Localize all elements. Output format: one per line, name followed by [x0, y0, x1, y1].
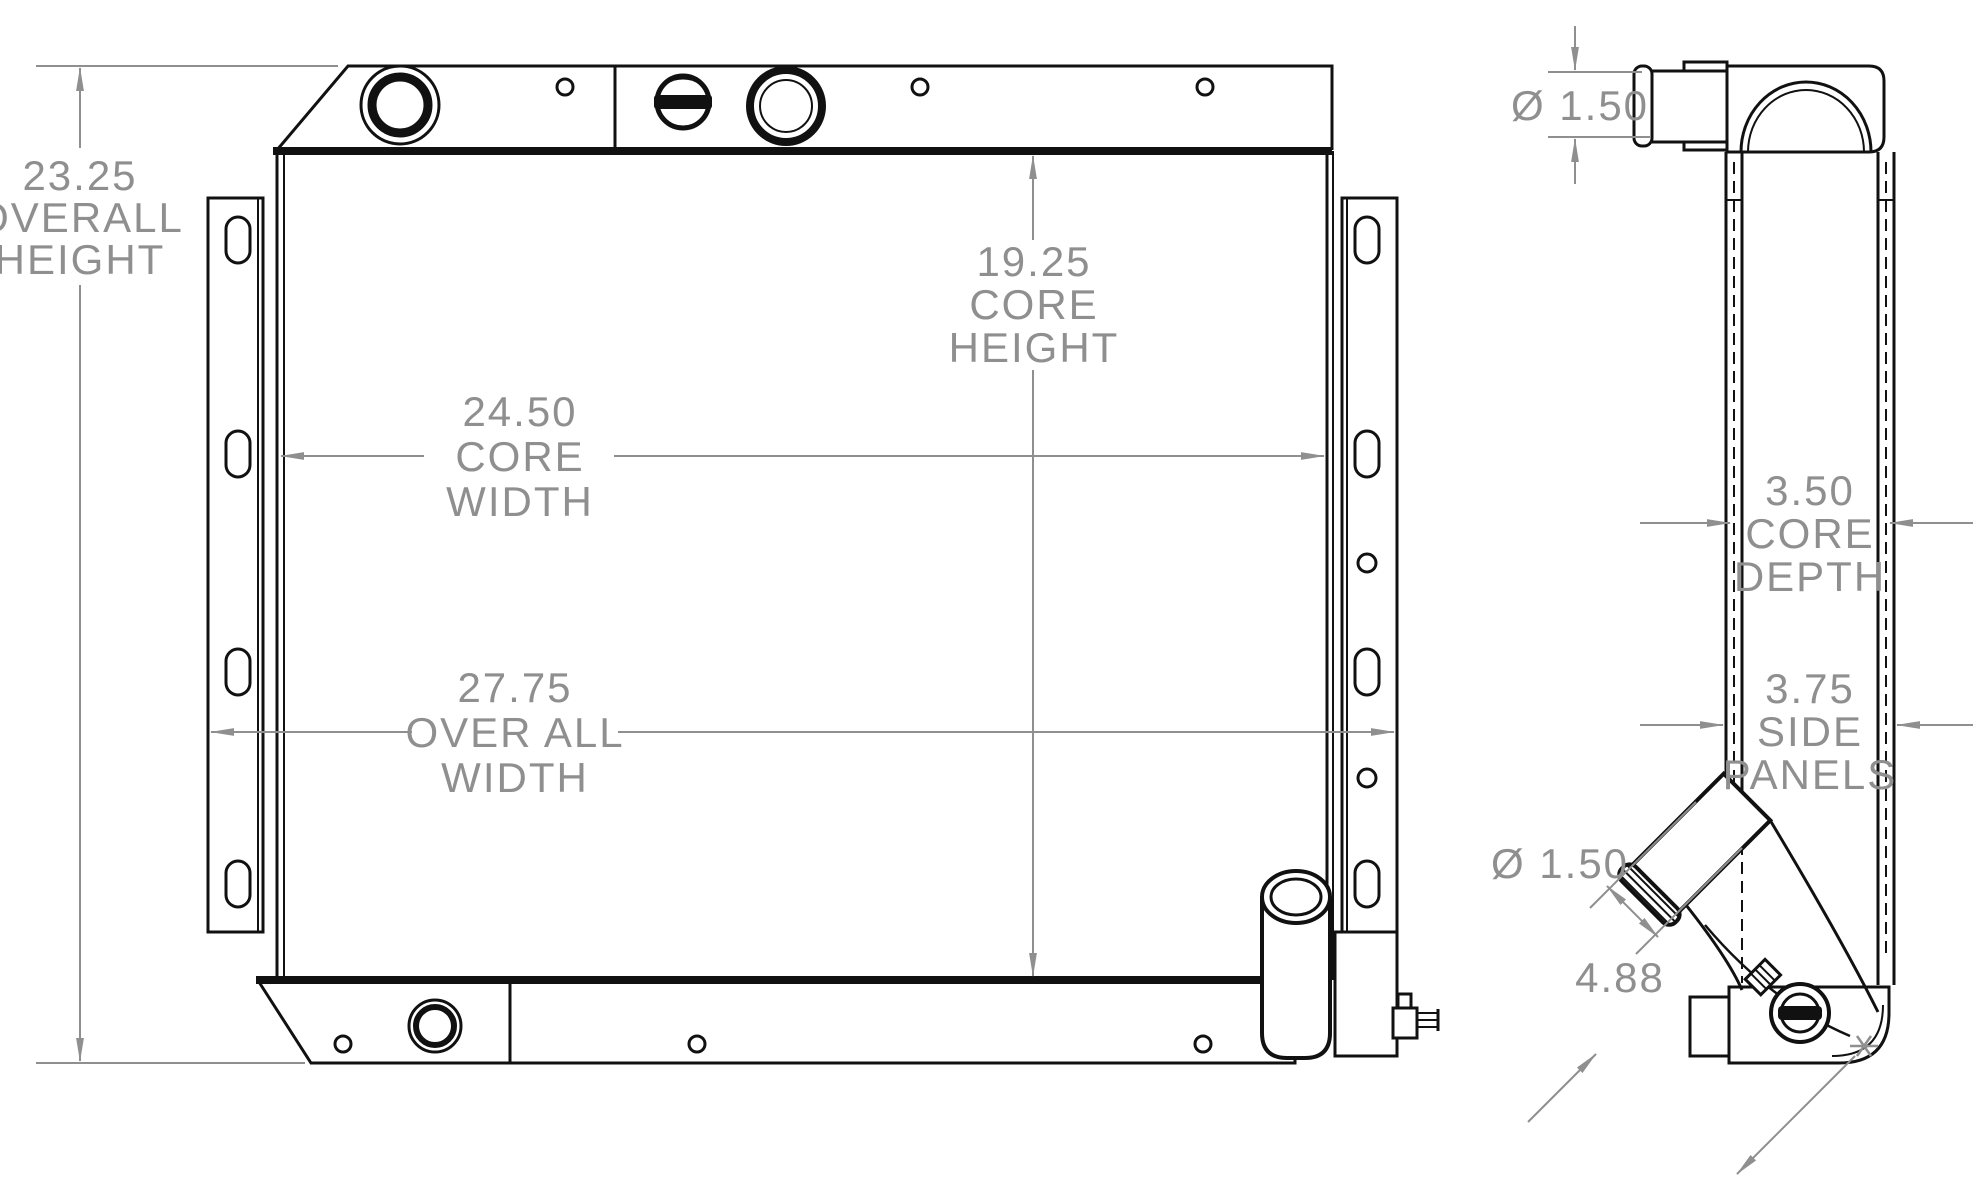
side-panels-label1: SIDE — [1757, 708, 1863, 755]
dim-overall-height: 23.25 OVERALL HEIGHT — [0, 66, 338, 1063]
core-depth-label1: CORE — [1745, 510, 1874, 557]
bracket-slot — [226, 217, 250, 263]
side-tank-outline — [1727, 66, 1884, 152]
dim-core-width: 24.50 CORE WIDTH — [281, 388, 1324, 525]
dim-side-panels: 3.75 SIDE PANELS — [1640, 665, 1973, 798]
tank-hole — [912, 79, 928, 95]
core-height-label1: CORE — [969, 281, 1098, 328]
bracket-slot — [226, 431, 250, 477]
bottom-tank — [259, 982, 1295, 1063]
side-foot — [1690, 997, 1729, 1056]
bracket-foot — [1335, 932, 1397, 1056]
bracket-slot — [1355, 649, 1379, 695]
bracket-slot — [1355, 431, 1379, 477]
tank-hole — [335, 1036, 351, 1052]
overall-height-label1: OVERALL — [0, 194, 184, 241]
overall-width-label1: OVER ALL — [405, 709, 624, 756]
bracket-slot — [226, 649, 250, 695]
core-side-plates — [256, 151, 1333, 980]
radiator-cap-icon — [654, 76, 712, 128]
core-width-label1: CORE — [455, 433, 584, 480]
core-height-value: 19.25 — [976, 238, 1091, 285]
side-panels-label2: PANELS — [1723, 751, 1898, 798]
inlet-diameter-value: Ø 1.50 — [1511, 82, 1649, 129]
second-neck-inner — [760, 80, 812, 132]
left-bracket — [208, 198, 263, 932]
dim-core-depth: 3.50 CORE DEPTH — [1640, 467, 1973, 600]
bracket-slot — [226, 861, 250, 907]
dim-inlet-diameter: Ø 1.50 — [1511, 26, 1650, 184]
bracket-hole — [1358, 769, 1376, 787]
overall-height-label2: HEIGHT — [0, 236, 165, 283]
core-width-value: 24.50 — [462, 388, 577, 435]
drain-boss-inner — [416, 1007, 454, 1045]
bracket-slot — [1355, 217, 1379, 263]
boss-outer-curve — [1770, 820, 1878, 1012]
core-width-label2: WIDTH — [446, 478, 594, 525]
outlet-length-value: 4.88 — [1575, 954, 1665, 1001]
front-view: 23.25 OVERALL HEIGHT 19.25 CORE HEIGHT 2… — [0, 66, 1438, 1063]
tank-hole — [1197, 79, 1213, 95]
dim-overall-width: 27.75 OVER ALL WIDTH — [211, 664, 1394, 801]
dim-core-height: 19.25 CORE HEIGHT — [949, 156, 1120, 976]
radiator-drawing: 23.25 OVERALL HEIGHT 19.25 CORE HEIGHT 2… — [0, 0, 1973, 1194]
tank-hole — [1195, 1036, 1211, 1052]
bracket-slot — [1355, 861, 1379, 907]
outlet-diameter-value: Ø 1.50 — [1491, 840, 1629, 887]
bracket-hole — [1358, 554, 1376, 572]
side-top-tank — [1634, 62, 1884, 152]
overall-width-value: 27.75 — [457, 664, 572, 711]
core-depth-label2: DEPTH — [1734, 553, 1886, 600]
drawing-canvas: 23.25 OVERALL HEIGHT 19.25 CORE HEIGHT 2… — [0, 0, 1973, 1194]
side-view: Ø 1.50 3.50 CORE DEPTH 3.75 SIDE PANELS … — [1491, 26, 1973, 1174]
inlet-pipe — [1650, 71, 1727, 142]
core-depth-value: 3.50 — [1765, 467, 1855, 514]
overall-height-value: 23.25 — [22, 152, 137, 199]
tank-hole — [557, 79, 573, 95]
overall-width-label2: WIDTH — [441, 754, 589, 801]
tank-hole — [689, 1036, 705, 1052]
outlet-tube-front — [1262, 871, 1438, 1058]
right-bracket — [1335, 198, 1397, 1056]
boss-lower-curve — [1686, 905, 1742, 990]
side-panels-value: 3.75 — [1765, 665, 1855, 712]
core-height-label2: HEIGHT — [949, 324, 1120, 371]
filler-neck-inner — [372, 77, 428, 133]
petcock-fitting-front — [1393, 994, 1438, 1038]
top-tank — [273, 66, 1332, 151]
